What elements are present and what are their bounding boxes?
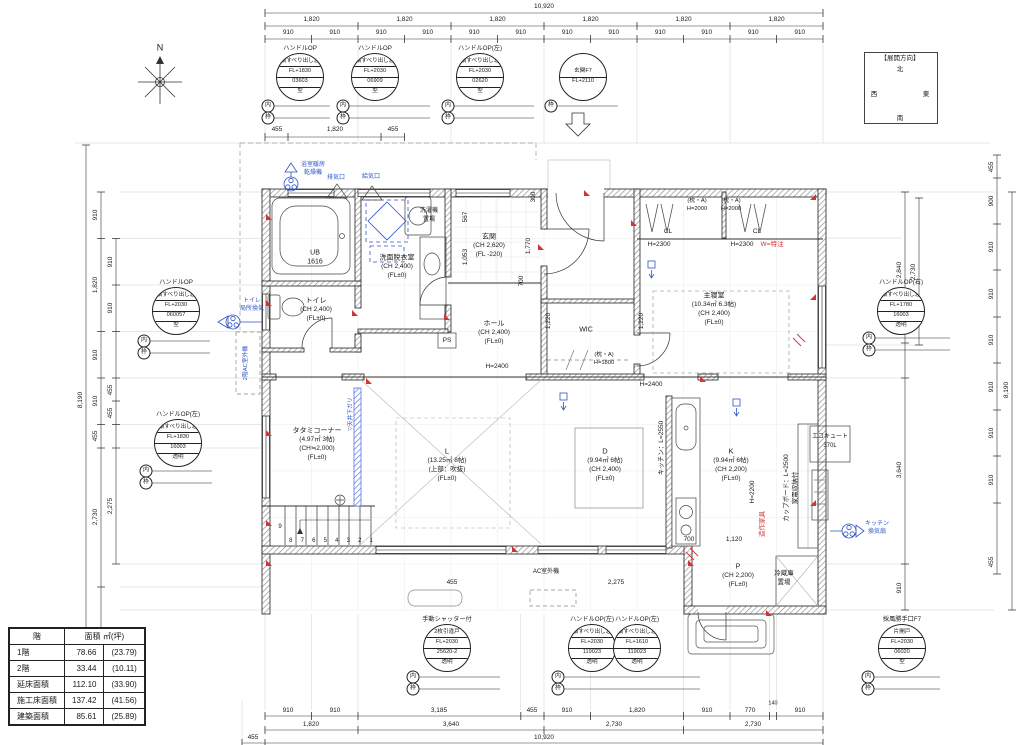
badge-frame: 枠 — [262, 112, 275, 125]
dim: 1,820 — [730, 17, 823, 24]
room-bedroom-area: (10.34㎡ 6.3帖) — [692, 302, 736, 309]
spec-row: 型 — [153, 321, 199, 331]
north-mark: N — [157, 44, 164, 53]
dim: 2,730 — [606, 722, 622, 729]
spec-title: 採風勝手口F7 — [867, 616, 937, 624]
area-row-label: 施工床面積 — [9, 693, 65, 709]
dim: 910 — [562, 708, 573, 715]
room-tatami-area: (4.97㎡ 3帖) — [299, 437, 334, 444]
low-wall-blue — [354, 388, 361, 506]
spec-row: 型 — [277, 87, 323, 97]
area-row-sqm: 112.10 — [65, 677, 104, 693]
stair-number: 8 — [285, 538, 297, 544]
north-arrow-icon — [138, 56, 182, 104]
dim: 910 — [989, 242, 996, 253]
badge-frame: 枠 — [138, 347, 151, 360]
dim: 910 — [684, 30, 731, 37]
dim: 1,053 — [463, 249, 470, 265]
spec-title: ハンドルOP — [265, 45, 335, 53]
entrance-porch — [548, 160, 610, 189]
spec-row: 16003 — [878, 311, 924, 321]
dim: 300 — [531, 192, 538, 203]
room-pantry-ch: (CH 2,200) — [722, 573, 754, 580]
compass-north: 北 — [897, 67, 904, 74]
vent-icon — [733, 399, 740, 406]
spec-row: 片開戸 — [879, 628, 925, 637]
spec-circle: 横すべり出し窓 FL+2030 06909 型 — [351, 53, 399, 101]
room-washroom-ch: (CH 2,400) — [381, 264, 413, 271]
room-entrance-ch: (CH 2,620) — [473, 243, 505, 250]
dim: 910 — [989, 382, 996, 393]
room-pantry-fl: (FL±0) — [728, 582, 747, 589]
note-kitchen-length: キッチン：L=2550 — [659, 421, 666, 475]
stair-number: 7 — [297, 538, 309, 544]
spec-row: FL+2030 — [424, 637, 470, 647]
doors — [302, 189, 726, 641]
compass-south: 南 — [897, 116, 904, 123]
room-living-fl: (FL±0) — [437, 476, 456, 483]
room-ub: UB — [310, 250, 320, 257]
spec-row: 透明 — [614, 658, 660, 668]
dim: 1,220 — [546, 313, 553, 329]
intake-label: 給気口 — [362, 174, 380, 180]
spec-row: 型 — [457, 87, 503, 97]
note: H=2000 — [687, 207, 707, 213]
compass-east: 東 — [923, 92, 930, 99]
room-entrance-fl: (FL -220) — [476, 252, 503, 259]
stair-number-top: 9 — [278, 524, 281, 530]
fridge-label2: 置場 — [778, 580, 791, 587]
room-dining-area: (9.94㎡ 6帖) — [587, 458, 622, 465]
spec-title: ハンドルOP(左) — [445, 45, 515, 53]
dim: 1,820 — [358, 17, 451, 24]
compass-west: 西 — [871, 92, 878, 99]
washer-label2: 置場 — [423, 217, 435, 223]
room-dining-ch: (CH 2,400) — [589, 467, 621, 474]
dim: 700 — [684, 537, 695, 544]
dim: 2,730 — [745, 722, 761, 729]
spec-circle: 横すべり出し窓 FL+1830 03603 型 — [276, 53, 324, 101]
dim: 910 — [795, 708, 806, 715]
dim: 1,820 — [303, 722, 319, 729]
ceiling-drop-label: ▽天井下ガリ — [349, 397, 355, 430]
badge-frame: 枠 — [862, 683, 875, 696]
fridge-label: 冷蔵庫 — [774, 571, 794, 578]
spec-row: 横すべり出し窓 — [352, 57, 398, 66]
dim: 1,820 — [327, 127, 343, 134]
ac2f-label: 2階AC室外機 — [244, 346, 250, 380]
note: (枕・A) — [721, 199, 740, 205]
area-row-sqm: 78.66 — [65, 645, 104, 661]
spec-row: FL+1610 — [614, 637, 660, 647]
note-custom-width: W=特注 — [761, 242, 784, 249]
dim: 1,220 — [639, 313, 646, 329]
dim: 2,275 — [108, 498, 115, 514]
dim: 770 — [745, 708, 756, 715]
room-dining-fl: (FL±0) — [595, 476, 614, 483]
bath-dryer-label: 浴室暖房 — [301, 162, 325, 168]
vanity — [420, 237, 446, 319]
stair-number: 5 — [320, 538, 332, 544]
stair-number: 1 — [366, 538, 378, 544]
spec-row: 横すべり出し窓 — [277, 57, 323, 66]
dim: 1,820 — [637, 17, 730, 24]
room-kitchen-fl: (FL±0) — [721, 476, 740, 483]
spec-row: 03603 — [277, 77, 323, 87]
area-row-sqm: 137.42 — [65, 693, 104, 709]
kitchen-vent-label2: 換気扇 — [868, 529, 886, 535]
table-row: 建築面積 85.61 (25.89) — [9, 709, 145, 726]
note: H=2400 — [486, 364, 509, 371]
exhaust-label: 排気口 — [327, 175, 345, 181]
note: H=2200 — [750, 481, 757, 504]
spec-title: 手動シャッター付 — [412, 616, 482, 624]
badge-frame: 枠 — [442, 112, 455, 125]
spec-title: ハンドルOP(左) — [143, 411, 213, 419]
dim: 1,820 — [451, 17, 544, 24]
vent-icon — [560, 393, 567, 400]
window-spec: 手動シャッター付 2枚引違戸 FL+2030 25620-2 透明 — [412, 616, 482, 672]
dim: 910 — [897, 583, 904, 594]
spec-title: ハンドルOP(左) — [602, 616, 672, 624]
floor-plan-drawing: 【展開方向】 北 西 東 南 N 10,920 1,8201,8201,8201… — [0, 0, 1024, 745]
ac-units — [236, 332, 576, 606]
room-living: L — [445, 447, 449, 455]
dim: 2,730 — [93, 509, 100, 525]
area-row-tsubo: (23.79) — [104, 645, 145, 661]
dim: 1,770 — [526, 238, 533, 254]
dim: 700 — [519, 276, 526, 287]
window-spec: ハンドルOP(左) 横すべり出し窓 FL+2030 02620 型 — [445, 45, 515, 101]
note: H=2300 — [731, 242, 754, 249]
spec-circle: 横すべり出し窓 FL+2030 02620 型 — [456, 53, 504, 101]
note-appliance-storage: 家電収納付 — [793, 472, 800, 505]
door-spec: 玄関F7 FL+2110 — [548, 45, 618, 101]
area-row-label: 延床面積 — [9, 677, 65, 693]
dim: 1,820 — [265, 17, 358, 24]
area-row-label: 2階 — [9, 661, 65, 677]
window-spec: ハンドルOP 横すべり出し窓 FL+2030 060057 型 — [141, 279, 211, 335]
bath-dryer-label2: 乾燥機 — [304, 170, 322, 176]
area-row-tsubo: (41.56) — [104, 693, 145, 709]
window-spec: ハンドルOP 横すべり出し窓 FL+2030 06909 型 — [340, 45, 410, 101]
dim: 910 — [637, 30, 684, 37]
dim: 910 — [989, 335, 996, 346]
spec-row: FL+2030 — [153, 300, 199, 310]
note: H=1800 — [594, 361, 614, 367]
stair-number: 2 — [354, 538, 366, 544]
direction-legend-title: 【展開方向】 — [881, 56, 920, 63]
spec-row: 玄関F7 — [560, 67, 606, 76]
dim: 900 — [989, 196, 996, 207]
note-cupboard: カップボード：L=2500 — [784, 454, 791, 521]
room-living-void: (上部：吹抜) — [429, 467, 466, 474]
skylight-outline — [366, 200, 408, 242]
dim: 910 — [93, 350, 100, 361]
dim: 455 — [248, 735, 259, 742]
spec-row: FL+1830 — [277, 66, 323, 76]
spec-row: 06909 — [352, 77, 398, 87]
spec-circle: 片開戸 FL+2030 06020 型 — [878, 624, 926, 672]
note: H=2400 — [640, 382, 663, 389]
table-row: 施工床面積 137.42 (41.56) — [9, 693, 145, 709]
direction-legend — [864, 52, 938, 124]
room-toilet-fl: (FL±0) — [306, 316, 325, 323]
dim: 910 — [405, 30, 452, 37]
room-hall: ホール — [484, 321, 505, 328]
spec-row: 119023 — [614, 648, 660, 658]
dim-top-total: 10,920 — [534, 4, 554, 11]
room-hall-fl: (FL±0) — [484, 339, 503, 346]
entry-direction-arrow — [566, 113, 590, 136]
spec-row: 透明 — [878, 321, 924, 331]
dim: 910 — [451, 30, 498, 37]
dim: 910 — [498, 30, 545, 37]
dim: 455 — [447, 580, 458, 587]
room-tatami-ch: (CH≒2,000) — [299, 446, 334, 453]
stair-number: 6 — [308, 538, 320, 544]
dim: 910 — [93, 396, 100, 407]
note: H=2000 — [721, 207, 741, 213]
room-toilet: トイレ — [306, 298, 327, 305]
dim-bottom-total: 10,920 — [534, 735, 554, 742]
red-slash-marks — [686, 334, 805, 560]
dim: 910 — [730, 30, 777, 37]
closet-label: CL — [753, 229, 761, 236]
room-kitchen: K — [728, 447, 733, 455]
badge-frame: 枠 — [337, 112, 350, 125]
extension-lines — [75, 44, 994, 740]
dim: 910 — [358, 30, 405, 37]
dim: 455 — [272, 127, 283, 134]
room-kitchen-ch: (CH 2,200) — [715, 467, 747, 474]
room-hall-ch: (CH 2,400) — [478, 330, 510, 337]
dim: 910 — [283, 708, 294, 715]
spec-row: 横すべり出し窓 — [614, 628, 660, 637]
window-spec: ハンドルOP(左) 横すべり出し窓 FL+1830 16003 透明 — [143, 411, 213, 467]
area-row-sqm: 85.61 — [65, 709, 104, 726]
room-dining: D — [602, 447, 607, 455]
dim: 1,120 — [726, 537, 742, 544]
room-washroom-fl: (FL±0) — [387, 273, 406, 280]
spec-row: 横すべり出し窓 — [878, 291, 924, 300]
ecocute-label: エコキュート — [812, 434, 848, 440]
note: H=2300 — [648, 242, 671, 249]
window-spec: ハンドルOP 横すべり出し窓 FL+1830 03603 型 — [265, 45, 335, 101]
table-row: 1階 78.66 (23.79) — [9, 645, 145, 661]
spec-row: FL+2030 — [352, 66, 398, 76]
note: (枕・A) — [687, 199, 706, 205]
spec-row: FL+2030 — [879, 637, 925, 647]
area-row-sqm: 33.44 — [65, 661, 104, 677]
dim: 140 — [768, 701, 777, 707]
table-row: 延床面積 112.10 (33.90) — [9, 677, 145, 693]
area-table-header-area: 面積 ㎡(坪) — [65, 628, 145, 645]
dim: 910 — [591, 30, 638, 37]
closet-label: CL — [664, 229, 672, 236]
badge-frame: 枠 — [863, 344, 876, 357]
dim: 455 — [108, 385, 115, 396]
spec-circle: 横すべり出し窓 FL+2030 060057 型 — [152, 287, 200, 335]
dim-row-1820: 1,8201,8201,8201,8201,8201,820 — [265, 17, 823, 24]
spec-circle: 2枚引違戸 FL+2030 25620-2 透明 — [423, 624, 471, 672]
spec-row: FL+1830 — [155, 432, 201, 442]
dim: 455 — [93, 431, 100, 442]
dim: 910 — [777, 30, 824, 37]
spec-title: ハンドルOP — [340, 45, 410, 53]
spec-row: FL+2110 — [560, 77, 606, 87]
dim: 910 — [989, 289, 996, 300]
dim: 455 — [527, 708, 538, 715]
room-wic: WIC — [579, 327, 593, 334]
spec-row: 06020 — [879, 648, 925, 658]
dim: 2,275 — [608, 580, 624, 587]
dim: 910 — [312, 30, 359, 37]
room-bedroom-fl: (FL±0) — [704, 320, 723, 327]
dim: 3,640 — [443, 722, 459, 729]
ac-outdoor-1f — [408, 590, 462, 606]
dim: 455 — [989, 557, 996, 568]
room-bedroom: 主寝室 — [704, 293, 725, 300]
toilet-vent-label: トイレ — [243, 298, 261, 304]
spec-row: 横すべり出し窓 — [457, 57, 503, 66]
area-row-tsubo: (25.89) — [104, 709, 145, 726]
area-row-tsubo: (33.90) — [104, 677, 145, 693]
dim: 910 — [330, 708, 341, 715]
spec-row: 透明 — [424, 658, 470, 668]
dim: 1,820 — [93, 277, 100, 293]
window-spec: ハンドルOP(左) 横すべり出し窓 FL+1610 119023 透明 — [602, 616, 672, 672]
spec-row: 横すべり出し窓 — [155, 423, 201, 432]
dim: 910 — [989, 475, 996, 486]
dim: 455 — [989, 162, 996, 173]
spec-row: 02620 — [457, 77, 503, 87]
area-table: 階 面積 ㎡(坪) 1階 78.66 (23.79) 2階 33.44 (10.… — [8, 627, 146, 726]
room-entrance: 玄関 — [482, 234, 496, 241]
dim: 910 — [702, 708, 713, 715]
washer-label: 洗濯機 — [420, 208, 438, 214]
ecocute-label2: 370L — [823, 443, 836, 449]
dim: 910 — [108, 257, 115, 268]
badge-frame: 枠 — [140, 477, 153, 490]
area-row-label: 1階 — [9, 645, 65, 661]
dim: 910 — [265, 30, 312, 37]
dim: 910 — [544, 30, 591, 37]
table-row: 2階 33.44 (10.11) — [9, 661, 145, 677]
dim: 2,730 — [911, 264, 918, 280]
stair-numbers: 87654321 — [285, 538, 377, 544]
spec-row: 060057 — [153, 311, 199, 321]
badge-frame: 枠 — [552, 683, 565, 696]
pipe-space-label: PS — [443, 338, 452, 345]
dim: 1,820 — [629, 708, 645, 715]
badge-frame: 枠 — [407, 683, 420, 696]
stair-number: 3 — [343, 538, 355, 544]
spec-title — [548, 45, 618, 53]
room-ub-size: 1616 — [307, 259, 323, 266]
room-living-area: (13.25㎡ 8帖) — [427, 458, 466, 465]
area-table-header-floor: 階 — [9, 628, 65, 645]
dim: 3,640 — [897, 462, 904, 478]
dim: 567 — [463, 212, 470, 223]
room-pantry: P — [736, 564, 741, 571]
spec-row: 横すべり出し窓 — [153, 291, 199, 300]
spec-row: 型 — [352, 87, 398, 97]
spec-circle: 玄関F7 FL+2110 — [559, 53, 607, 101]
stair-number: 4 — [331, 538, 343, 544]
note: (枕・A) — [594, 353, 613, 359]
spec-row: 16003 — [155, 443, 201, 453]
spec-circle: 横すべり出し窓 FL+1610 119023 透明 — [613, 624, 661, 672]
spec-circle: 横すべり出し窓 FL+1830 16003 透明 — [154, 419, 202, 467]
dim: 910 — [989, 428, 996, 439]
room-washroom: 洗面脱衣室 — [380, 255, 415, 262]
room-toilet-ch: (CH 2,400) — [300, 307, 332, 314]
area-row-label: 建築面積 — [9, 709, 65, 726]
spec-title: ハンドルOP(右) — [866, 279, 936, 287]
dim: 2,840 — [897, 262, 904, 278]
door-spec: 採風勝手口F7 片開戸 FL+2030 06020 型 — [867, 616, 937, 672]
window-spec: ハンドルOP(右) 横すべり出し窓 FL+1780 16003 透明 — [866, 279, 936, 335]
dim-right-total: 8,190 — [1004, 382, 1011, 398]
spec-row: FL+2030 — [457, 66, 503, 76]
dim: 3,185 — [431, 708, 447, 715]
ac-outdoor-label: AC室外機 — [533, 569, 559, 575]
dim: 910 — [93, 210, 100, 221]
spec-circle: 横すべり出し窓 FL+1780 16003 透明 — [877, 287, 925, 335]
dim-left-total: 8,190 — [78, 392, 85, 408]
spec-row: 25620-2 — [424, 648, 470, 658]
spec-row: 2枚引違戸 — [424, 628, 470, 637]
spec-row: FL+1780 — [878, 300, 924, 310]
dim: 910 — [108, 303, 115, 314]
dim: 455 — [388, 127, 399, 134]
note-builtin-furniture: 造作家具 — [760, 511, 767, 537]
dim-row-910: 910910910910910910910910910910910910 — [265, 30, 823, 37]
dim: 1,820 — [544, 17, 637, 24]
spec-row: 型 — [879, 658, 925, 668]
vent-icon — [648, 261, 655, 268]
toilet-vent-label2: 局所換気 — [240, 306, 264, 312]
dim: 455 — [108, 408, 115, 419]
room-tatami-fl: (FL±0) — [307, 455, 326, 462]
room-tatami: タタミコーナー — [293, 428, 342, 435]
area-row-tsubo: (10.11) — [104, 661, 145, 677]
room-kitchen-area: (9.94㎡ 6帖) — [713, 458, 748, 465]
spec-row: 透明 — [155, 453, 201, 463]
spec-title: ハンドルOP — [141, 279, 211, 287]
badge-frame: 枠 — [545, 100, 558, 113]
room-bedroom-ch: (CH 2,400) — [698, 311, 730, 318]
kitchen-vent-label: キッチン — [865, 521, 889, 527]
